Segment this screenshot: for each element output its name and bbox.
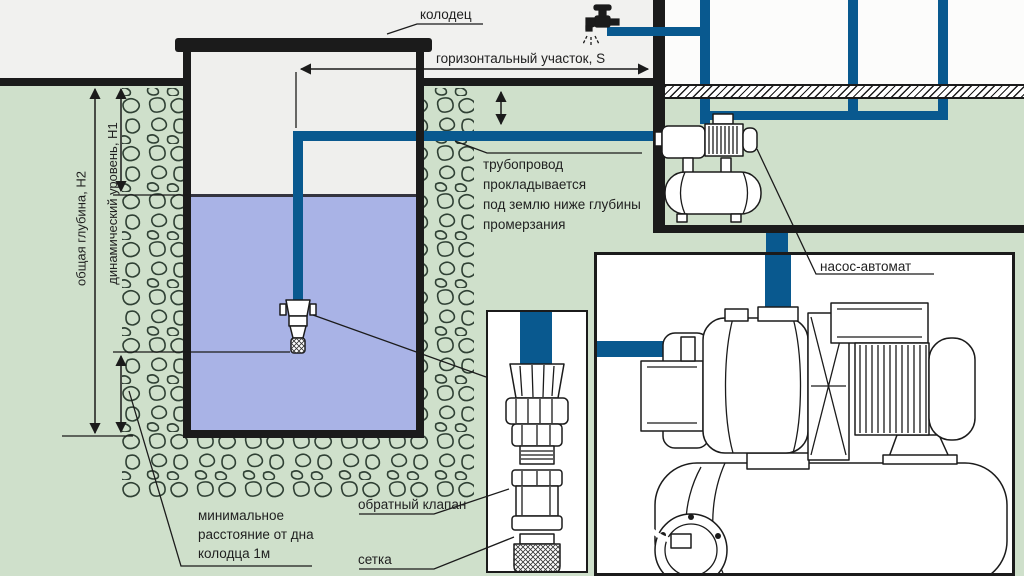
min-distance-line3: колодца 1м bbox=[198, 544, 314, 563]
min-distance-label: минимальное расстояние от дна колодца 1м bbox=[198, 506, 314, 563]
leader-well-label bbox=[387, 24, 483, 34]
leader-intake-to-box bbox=[313, 315, 486, 377]
well-label: колодец bbox=[420, 5, 472, 24]
pump-station-label: насос-автомат bbox=[820, 257, 911, 276]
horizontal-section-label: горизонтальный участок, S bbox=[436, 49, 605, 68]
min-distance-line1: минимальное bbox=[198, 506, 314, 525]
pipeline-note-line4: промерзания bbox=[483, 215, 641, 235]
dimension-1m bbox=[113, 352, 290, 432]
dimension-horizontal-s bbox=[296, 69, 648, 128]
leader-pipeline-note bbox=[455, 141, 642, 153]
pipeline-note: трубопровод прокладывается под землю ниж… bbox=[483, 155, 641, 235]
min-distance-line2: расстояние от дна bbox=[198, 525, 314, 544]
dimension-and-leader-lines bbox=[0, 0, 1024, 576]
pipeline-note-line1: трубопровод bbox=[483, 155, 641, 175]
dimension-h1 bbox=[113, 89, 188, 195]
mesh-label: сетка bbox=[358, 550, 392, 569]
pipeline-note-line3: под землю ниже глубины bbox=[483, 195, 641, 215]
check-valve-label: обратный клапан bbox=[358, 495, 466, 514]
total-depth-label: общая глубина, Н2 bbox=[72, 154, 91, 304]
well-water-supply-diagram: колодец горизонтальный участок, S трубоп… bbox=[0, 0, 1024, 576]
dynamic-level-label: динамический уровень, Н1 bbox=[103, 111, 122, 296]
pipeline-note-line2: прокладывается bbox=[483, 175, 641, 195]
leader-pump-station bbox=[757, 149, 934, 274]
